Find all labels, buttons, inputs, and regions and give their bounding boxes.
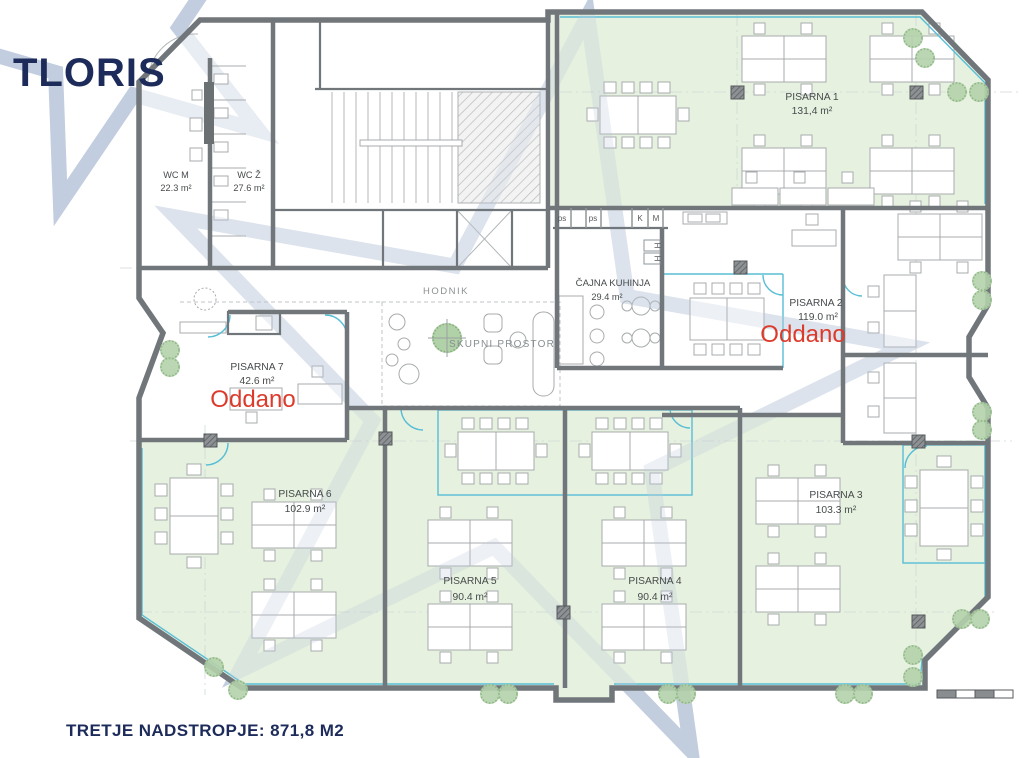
room-label: WC M xyxy=(163,170,189,180)
room-label: PISARNA 2 xyxy=(789,298,842,309)
room-area: 29.4 m² xyxy=(591,292,622,302)
utility-label-k: K xyxy=(637,214,643,223)
room-label: HODNIK xyxy=(423,286,469,297)
utility-label-ps: ps xyxy=(558,214,566,223)
room-label: PISARNA 7 xyxy=(230,362,283,373)
room-area: 90.4 m² xyxy=(453,592,488,603)
room-label: SKUPNI PROSTOR xyxy=(449,339,555,350)
page-title: TLORIS xyxy=(13,51,166,96)
room-hodnik: HODNIK xyxy=(423,286,469,297)
utility-label-ps: ps xyxy=(589,214,597,223)
floor-summary: TRETJE NADSTROPJE: 871,8 M2 xyxy=(66,721,344,741)
utility-label-h: H xyxy=(653,256,662,262)
room-label: PISARNA 6 xyxy=(278,489,331,500)
room-label: PISARNA 5 xyxy=(443,576,496,587)
entry-wall-pier xyxy=(204,82,214,144)
utility-label-h: H xyxy=(653,243,662,249)
room-area: 102.9 m² xyxy=(285,504,326,515)
room-label: WC Ž xyxy=(237,170,261,180)
status-label-oddano: Oddano xyxy=(210,386,295,413)
room-skupni-prostor: SKUPNI PROSTOR xyxy=(449,339,555,350)
floor-plan-drawing: WC M 22.3 m² WC Ž 27.6 m² PISARNA 1 131,… xyxy=(0,0,1024,758)
room-area: 27.6 m² xyxy=(233,183,264,193)
room-label: ČAJNA KUHINJA xyxy=(576,278,651,289)
status-label-oddano: Oddano xyxy=(760,321,845,348)
room-label: PISARNA 4 xyxy=(628,576,681,587)
scale-bar xyxy=(937,690,1013,698)
utility-label-m: M xyxy=(653,214,660,223)
room-area: 22.3 m² xyxy=(160,183,191,193)
room-area: 131,4 m² xyxy=(792,106,833,117)
room-label: PISARNA 3 xyxy=(809,490,862,501)
room-area: 90.4 m² xyxy=(638,592,673,603)
floor-plan-page: WC M 22.3 m² WC Ž 27.6 m² PISARNA 1 131,… xyxy=(0,0,1024,758)
room-label: PISARNA 1 xyxy=(785,92,838,103)
room-area: 103.3 m² xyxy=(816,505,857,516)
